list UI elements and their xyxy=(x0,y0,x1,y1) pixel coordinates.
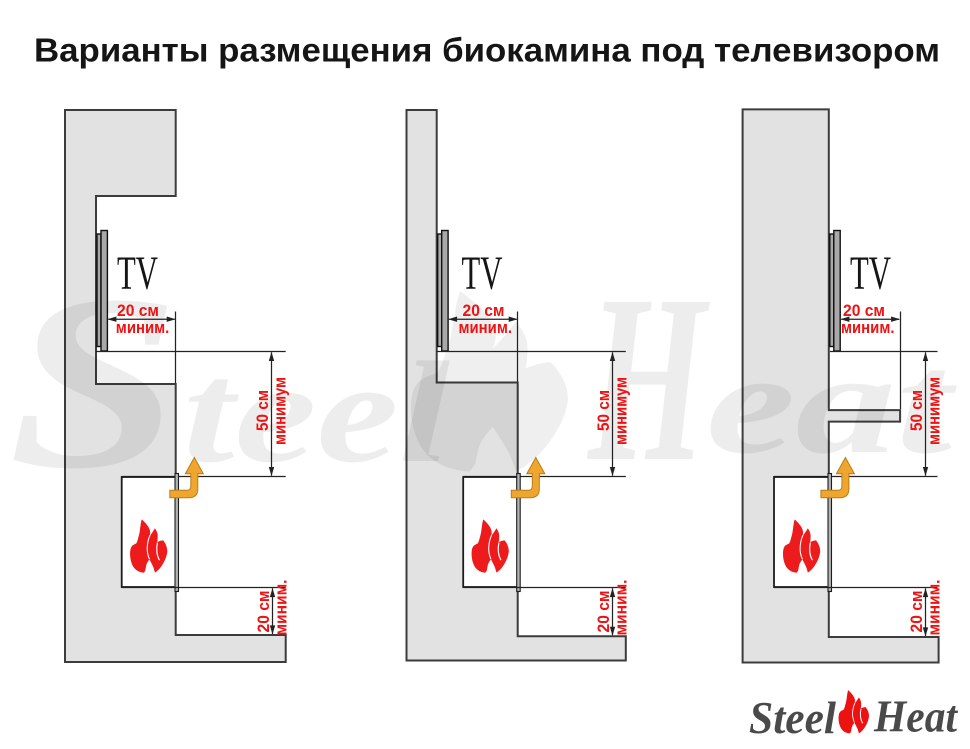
svg-text:20 см: 20 см xyxy=(254,591,273,633)
svg-text:миним.: миним. xyxy=(925,580,944,636)
svg-text:миним.: миним. xyxy=(116,318,170,337)
svg-text:Варианты размещения биокамина: Варианты размещения биокамина под телеви… xyxy=(34,33,940,70)
svg-text:50 см: 50 см xyxy=(594,390,613,431)
svg-text:минимум: минимум xyxy=(271,377,290,445)
svg-text:50 см: 50 см xyxy=(253,390,272,431)
svg-text:Steel: Steel xyxy=(749,693,836,743)
svg-text:TV: TV xyxy=(117,247,158,300)
svg-text:20 см: 20 см xyxy=(594,591,613,633)
svg-text:50 см: 50 см xyxy=(907,390,926,431)
svg-text:H: H xyxy=(587,245,710,511)
svg-text:Heat: Heat xyxy=(873,692,958,742)
svg-text:минимум: минимум xyxy=(612,377,631,445)
svg-text:20 см: 20 см xyxy=(907,591,926,633)
svg-text:миним.: миним. xyxy=(612,580,631,636)
svg-text:миним.: миним. xyxy=(841,318,895,337)
svg-text:teel: teel xyxy=(183,333,451,493)
svg-text:TV: TV xyxy=(850,247,891,300)
svg-text:TV: TV xyxy=(462,247,503,300)
svg-text:минимум: минимум xyxy=(925,377,944,445)
svg-text:миним.: миним. xyxy=(272,580,291,636)
svg-text:миним.: миним. xyxy=(459,318,513,337)
